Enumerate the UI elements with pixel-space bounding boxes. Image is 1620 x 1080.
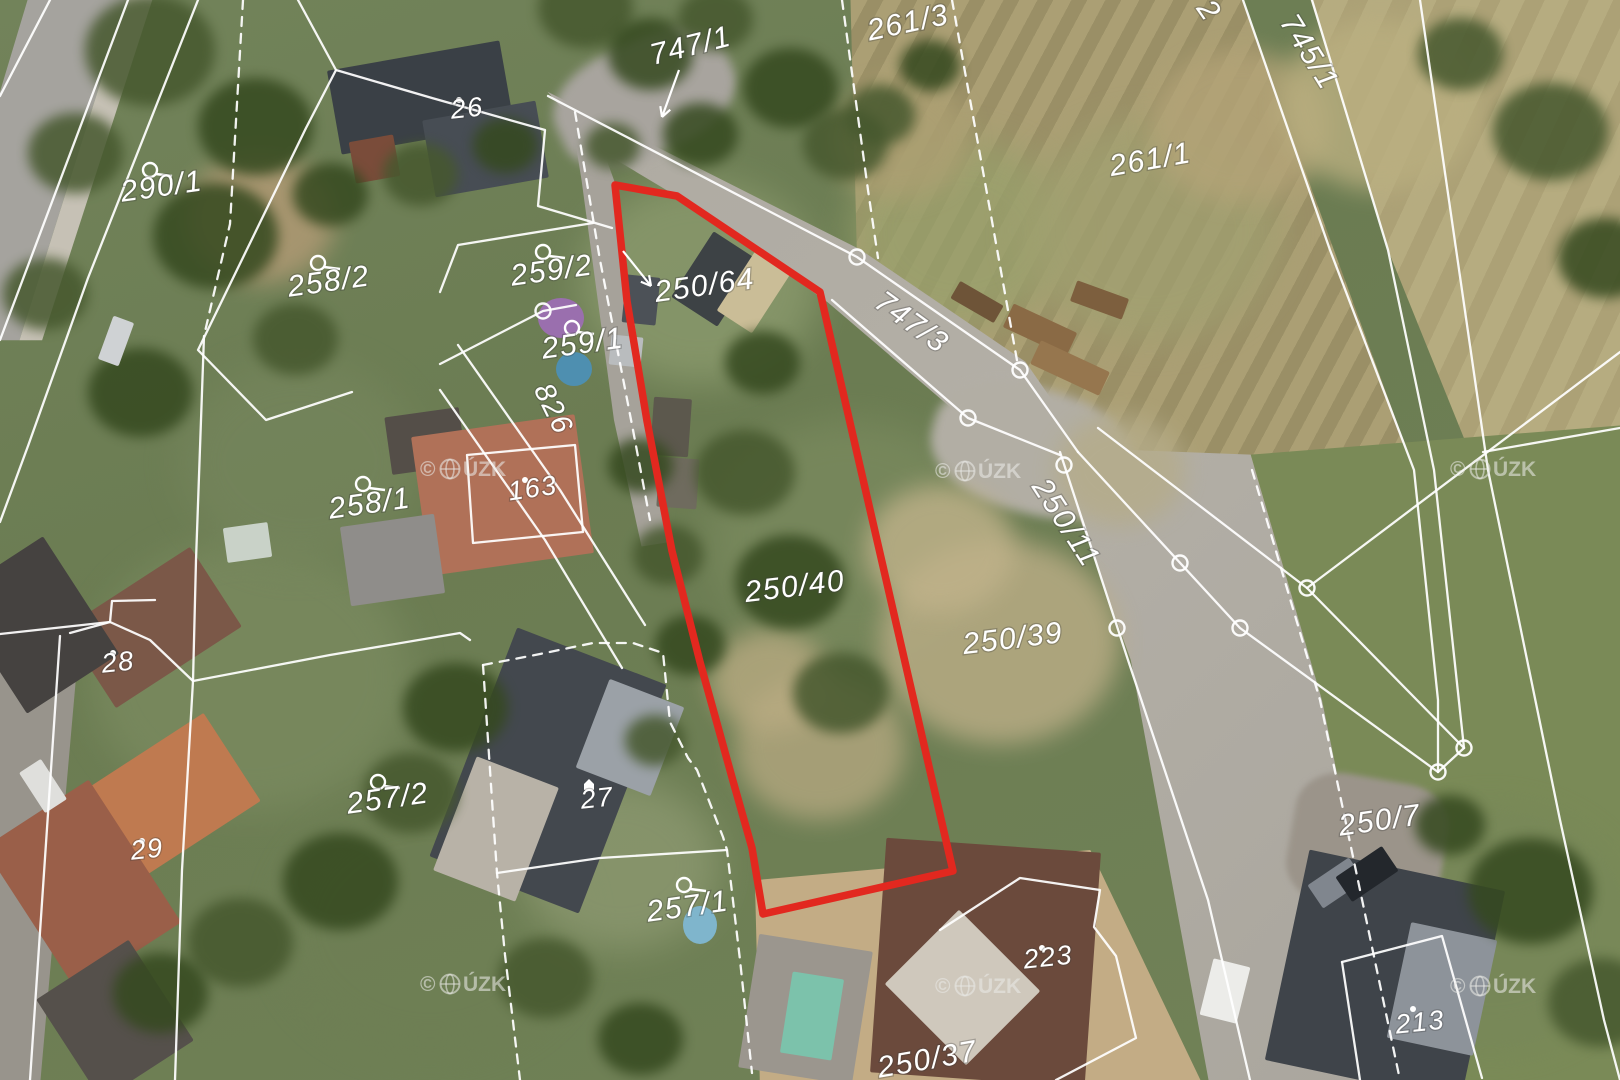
tree-icon [153,183,278,289]
tree-icon [735,535,845,629]
water-barrel [556,352,592,386]
tree-icon [473,118,538,173]
tree-icon [283,833,398,931]
tree-icon [608,438,673,493]
landuse-symbol-tail-icon [156,174,172,176]
tree-icon [725,331,800,395]
tree-icon [1468,838,1593,944]
tree-icon [3,258,88,330]
tree-icon [383,143,458,207]
tree-icon [188,898,293,987]
tree-icon [695,430,795,515]
tree-icon [793,653,888,734]
cadastral-map[interactable]: 747/1261/32745/1261/1290/126258/2259/225… [0,0,1620,1080]
parked-van [622,274,661,325]
tree-icon [845,85,915,145]
tree-icon [598,1003,683,1075]
terrain-patch [865,485,1015,613]
tree-icon [900,40,960,91]
terrain-patch [1055,415,1185,526]
tree-icon [633,525,703,585]
landuse-symbol-tail-icon [578,332,594,334]
landuse-symbol-tail-icon [324,267,340,269]
tree-icon [1493,83,1608,181]
tree-icon [253,303,338,375]
landuse-symbol-tail-icon [549,256,565,258]
tree-icon [85,0,215,106]
boundary-line [440,223,593,292]
tree-icon [1415,795,1485,855]
parked-car [609,334,644,367]
tree-icon [28,113,123,194]
tree-icon [585,123,640,170]
tree-icon [1418,18,1503,90]
landuse-symbol-icon [143,163,157,177]
trampoline [538,298,584,338]
tree-icon [625,715,685,766]
tree-icon [663,103,738,167]
tree-icon [655,615,725,675]
tree-icon [363,753,458,834]
round-pool [683,906,717,944]
landuse-symbol-icon [536,245,550,259]
tree-icon [293,163,368,227]
tree-icon [498,938,593,1019]
tree-icon [113,953,208,1034]
barn-roof [340,514,445,606]
greenhouse [223,522,272,563]
tree-icon [403,663,508,752]
tree-icon [198,78,313,176]
